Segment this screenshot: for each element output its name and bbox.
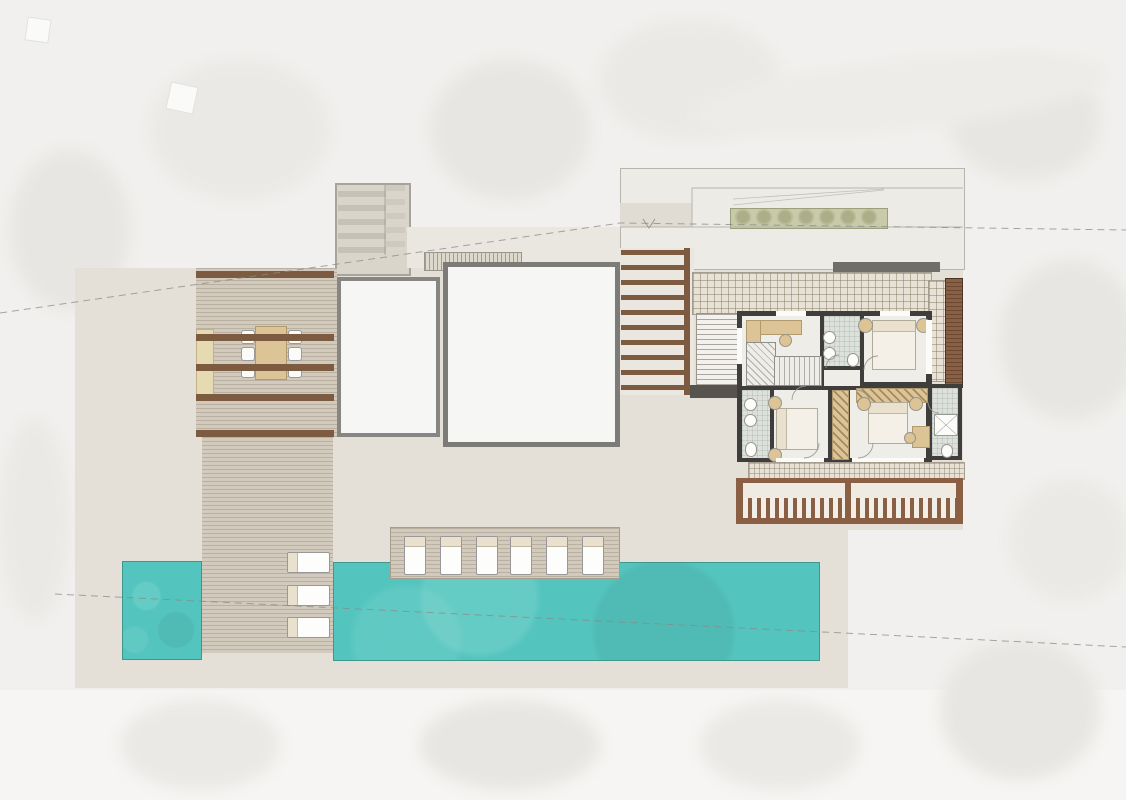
plant-icon (819, 209, 835, 225)
sun-lounger (476, 536, 498, 575)
tower-tread (386, 241, 405, 247)
plant-icon (861, 209, 877, 225)
pergola-beam (621, 265, 689, 270)
generated-elements (0, 0, 1126, 800)
site-plan-canvas (0, 0, 1126, 800)
pergola-beam (196, 394, 334, 401)
sun-lounger (287, 552, 330, 573)
plant-icon (798, 209, 814, 225)
pergola-beam (621, 325, 689, 330)
dining-chair (241, 347, 255, 361)
dining-chair (288, 347, 302, 361)
pergola-beam (196, 271, 334, 278)
sun-lounger (440, 536, 462, 575)
pergola-beam (621, 340, 689, 345)
tower-tread (338, 205, 386, 211)
sun-lounger (404, 536, 426, 575)
pergola-beam (621, 355, 689, 360)
sun-lounger (582, 536, 604, 575)
pergola-beam (621, 280, 689, 285)
tower-tread (386, 199, 405, 205)
tower-tread (338, 233, 386, 239)
pergola-beam (621, 385, 689, 390)
plant-icon (840, 209, 856, 225)
plant-icon (777, 209, 793, 225)
sun-lounger (546, 536, 568, 575)
pergola-beam (621, 370, 689, 375)
plant-icon (735, 209, 751, 225)
tower-tread (386, 227, 405, 233)
pergola-beam (621, 250, 689, 255)
tower-tread (338, 219, 386, 225)
sun-lounger (510, 536, 532, 575)
tower-tread (386, 185, 405, 191)
pergola-beam (621, 295, 689, 300)
pergola-beam (621, 310, 689, 315)
pergola-beam (196, 430, 334, 437)
plant-icon (756, 209, 772, 225)
tower-tread (386, 213, 405, 219)
pergola-beam (196, 364, 334, 371)
tower-tread (338, 191, 386, 197)
pergola-beam (196, 334, 334, 341)
tower-tread (338, 247, 386, 253)
sun-lounger (287, 585, 330, 606)
sun-lounger (287, 617, 330, 638)
